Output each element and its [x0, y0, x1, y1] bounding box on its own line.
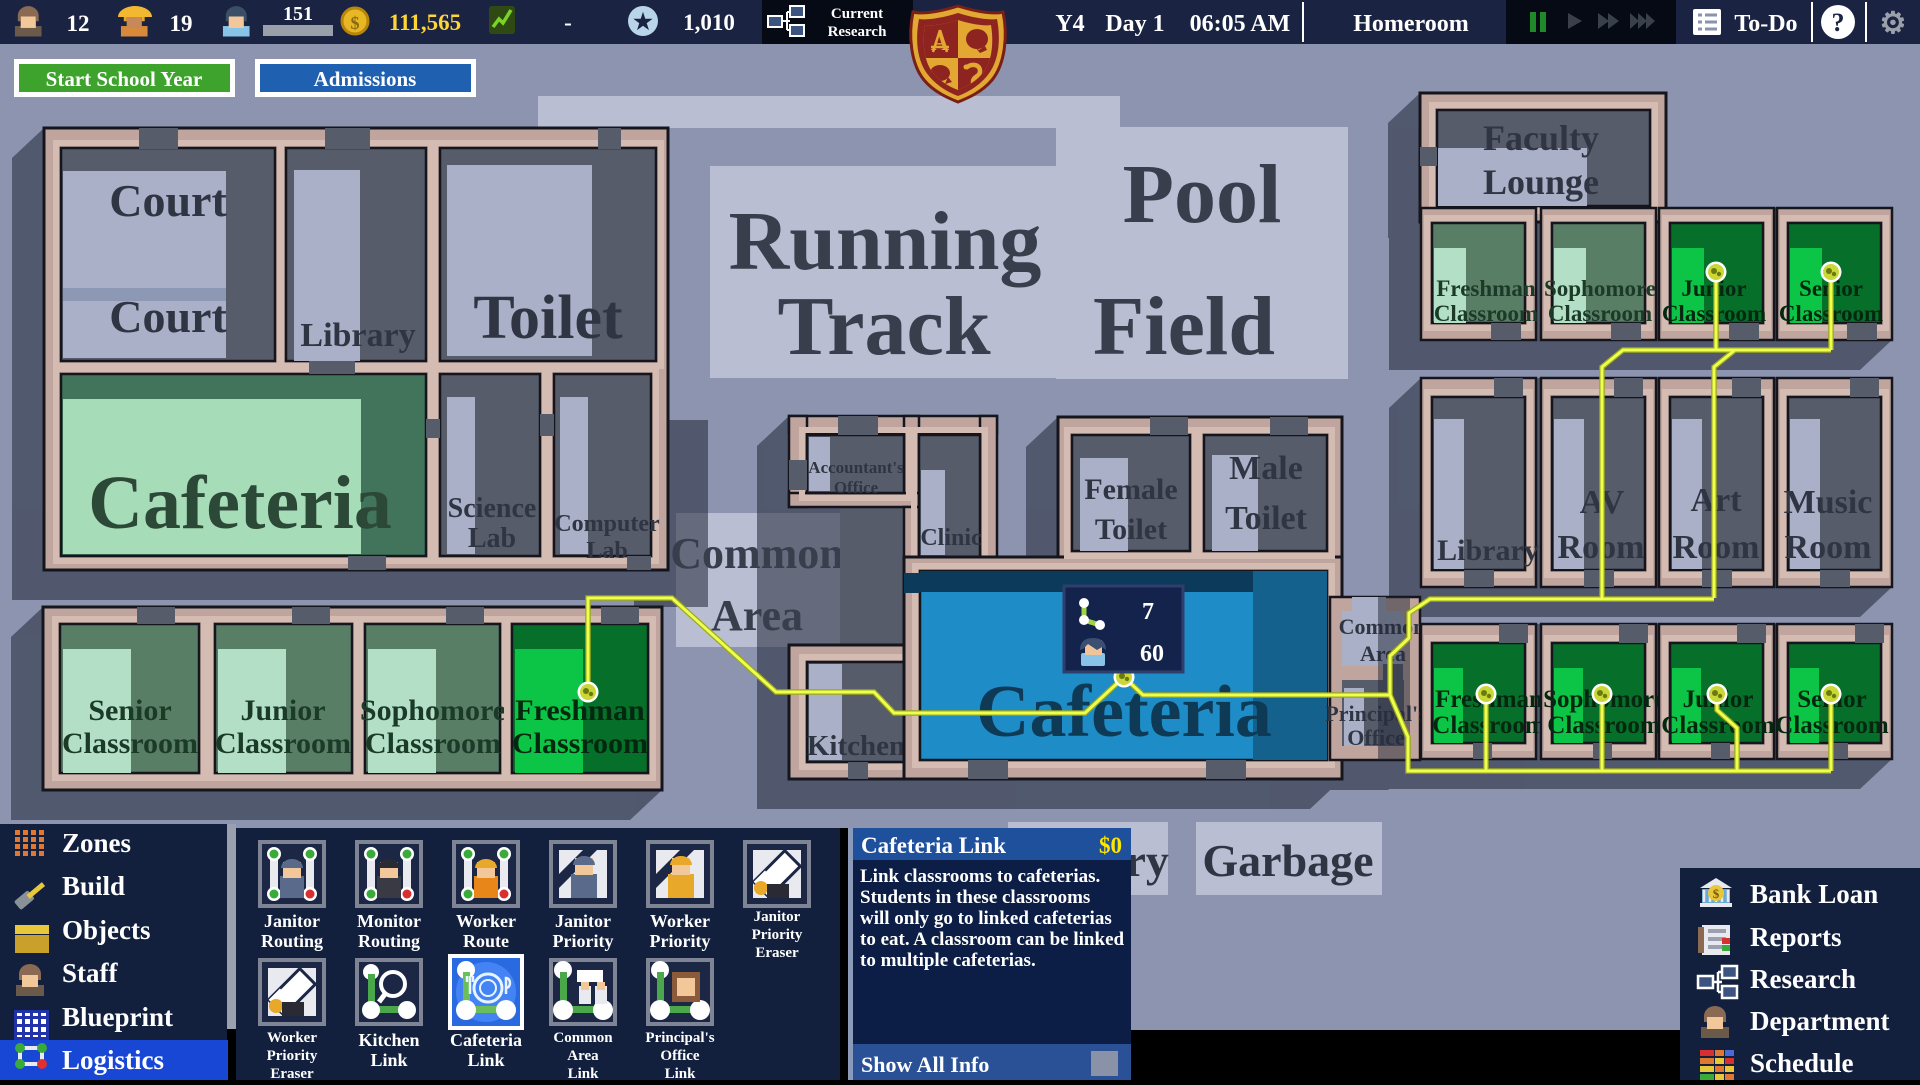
svg-text:Track: Track	[777, 280, 990, 373]
svg-text:Classroom: Classroom	[62, 727, 198, 760]
svg-text:Common: Common	[670, 529, 844, 578]
svg-text:111,565: 111,565	[389, 10, 461, 35]
svg-text:19: 19	[170, 11, 193, 36]
svg-text:Office: Office	[834, 478, 879, 497]
svg-text:Eraser: Eraser	[755, 945, 799, 961]
svg-text:Music: Music	[1784, 484, 1873, 521]
svg-text:$0: $0	[1099, 833, 1122, 858]
svg-text:Classroom: Classroom	[1548, 301, 1652, 326]
svg-text:$: $	[1713, 886, 1720, 901]
svg-text:Priority: Priority	[650, 931, 711, 951]
svg-text:Garbage: Garbage	[1202, 835, 1373, 886]
svg-text:Senior: Senior	[88, 694, 171, 727]
svg-text:Priority: Priority	[752, 927, 803, 943]
svg-text:Running: Running	[729, 195, 1042, 288]
svg-text:Link: Link	[568, 1066, 600, 1080]
svg-text:Classroom: Classroom	[365, 727, 501, 760]
svg-text:will only go to linked cafeter: will only go to linked cafeterias	[860, 908, 1112, 929]
svg-text:Bank Loan: Bank Loan	[1750, 879, 1878, 909]
svg-text:$: $	[351, 13, 360, 33]
svg-text:Female: Female	[1084, 473, 1177, 506]
svg-text:Routing: Routing	[358, 931, 420, 951]
svg-text:60: 60	[1140, 641, 1164, 667]
svg-text:Room: Room	[1785, 529, 1872, 566]
svg-text:Eraser: Eraser	[270, 1066, 314, 1080]
svg-text:Worker: Worker	[267, 1030, 317, 1046]
svg-text:Computer: Computer	[554, 511, 660, 537]
svg-text:Blueprint: Blueprint	[62, 1002, 173, 1032]
svg-text:Research: Research	[1750, 964, 1856, 994]
svg-text:Route: Route	[463, 931, 509, 951]
svg-text:06:05 AM: 06:05 AM	[1190, 11, 1291, 37]
svg-text:Start School Year: Start School Year	[46, 67, 203, 91]
svg-text:-: -	[564, 10, 572, 35]
svg-text:Janitor: Janitor	[264, 911, 320, 931]
svg-text:7: 7	[1142, 599, 1154, 625]
svg-text:Zones: Zones	[62, 828, 131, 858]
svg-text:Current: Current	[831, 6, 883, 22]
svg-text:Show All Info: Show All Info	[861, 1052, 989, 1077]
svg-text:Build: Build	[62, 871, 125, 901]
svg-text:Department: Department	[1750, 1006, 1889, 1036]
svg-text:to eat. A classroom can be lin: to eat. A classroom can be linked	[860, 929, 1125, 950]
svg-text:Janitor: Janitor	[754, 909, 801, 925]
svg-text:Male: Male	[1229, 450, 1303, 487]
svg-text:151: 151	[283, 3, 313, 25]
svg-text:Classroom: Classroom	[1434, 301, 1538, 326]
svg-text:Court: Court	[109, 291, 227, 342]
svg-text:Schedule: Schedule	[1750, 1048, 1854, 1078]
svg-text:Link: Link	[370, 1050, 407, 1070]
svg-text:Research: Research	[828, 24, 888, 40]
svg-text:1,010: 1,010	[683, 10, 735, 35]
svg-text:Pool: Pool	[1123, 148, 1282, 241]
svg-text:Reports: Reports	[1750, 922, 1841, 952]
svg-text:Freshman: Freshman	[1436, 276, 1535, 301]
svg-text:Objects: Objects	[62, 915, 150, 945]
svg-text:Cafeteria: Cafeteria	[88, 461, 392, 545]
svg-text:Common: Common	[553, 1030, 613, 1046]
svg-text:?: ?	[1832, 8, 1845, 37]
svg-text:Students in these classrooms: Students in these classrooms	[860, 887, 1090, 908]
svg-text:Cafeteria Link: Cafeteria Link	[861, 833, 1006, 858]
svg-text:Staff: Staff	[62, 958, 118, 988]
svg-text:Accountant's: Accountant's	[808, 458, 904, 477]
svg-text:Lab: Lab	[586, 538, 627, 564]
svg-text:Y4: Y4	[1055, 11, 1084, 37]
svg-text:Classroom: Classroom	[215, 727, 351, 760]
svg-text:Worker: Worker	[650, 911, 710, 931]
svg-text:Classroom: Classroom	[1661, 712, 1775, 739]
svg-text:Priority: Priority	[267, 1048, 318, 1064]
svg-text:to multiple cafeterias.: to multiple cafeterias.	[860, 950, 1036, 971]
svg-text:Field: Field	[1093, 280, 1275, 373]
svg-text:Area: Area	[567, 1048, 599, 1064]
svg-text:Court: Court	[109, 175, 227, 226]
svg-text:Principal's: Principal's	[1325, 701, 1427, 726]
svg-text:Science: Science	[448, 493, 537, 524]
svg-text:Area: Area	[711, 591, 803, 640]
svg-text:⚙: ⚙	[1880, 7, 1907, 40]
svg-text:Monitor: Monitor	[357, 911, 421, 931]
svg-text:Lab: Lab	[468, 523, 516, 554]
svg-text:Priority: Priority	[553, 931, 614, 951]
svg-text:Sophomore: Sophomore	[360, 694, 506, 727]
svg-text:Classroom: Classroom	[1432, 712, 1546, 739]
svg-text:Clinic: Clinic	[920, 525, 982, 551]
svg-text:Cafeteria: Cafeteria	[450, 1030, 522, 1050]
svg-text:Link classrooms to cafeterias.: Link classrooms to cafeterias.	[860, 866, 1100, 887]
svg-text:★: ★	[633, 9, 653, 34]
svg-text:Toilet: Toilet	[1095, 513, 1167, 546]
svg-text:Library: Library	[1437, 534, 1539, 567]
svg-text:Principal's: Principal's	[645, 1030, 714, 1046]
svg-text:Homeroom: Homeroom	[1353, 11, 1469, 37]
svg-text:Junior: Junior	[240, 694, 325, 727]
svg-text:To-Do: To-Do	[1734, 11, 1797, 37]
svg-text:Toilet: Toilet	[473, 284, 623, 352]
svg-text:Office: Office	[660, 1048, 699, 1064]
svg-text:Routing: Routing	[261, 931, 323, 951]
svg-text:Janitor: Janitor	[555, 911, 611, 931]
svg-text:Kitchen: Kitchen	[807, 730, 905, 762]
svg-text:Faculty: Faculty	[1483, 118, 1599, 158]
svg-text:Classroom: Classroom	[512, 727, 648, 760]
svg-text:Worker: Worker	[456, 911, 516, 931]
svg-text:Link: Link	[467, 1050, 504, 1070]
svg-text:Link: Link	[665, 1066, 697, 1080]
svg-text:Library: Library	[300, 317, 415, 354]
svg-text:Lounge: Lounge	[1483, 162, 1599, 202]
svg-text:Day 1: Day 1	[1105, 11, 1164, 37]
svg-text:Kitchen: Kitchen	[359, 1030, 420, 1050]
svg-text:12: 12	[67, 11, 90, 36]
svg-text:Logistics: Logistics	[62, 1045, 164, 1075]
svg-text:Admissions: Admissions	[314, 67, 417, 91]
svg-text:Toilet: Toilet	[1225, 500, 1308, 537]
svg-text:Sophomore: Sophomore	[1544, 276, 1656, 301]
